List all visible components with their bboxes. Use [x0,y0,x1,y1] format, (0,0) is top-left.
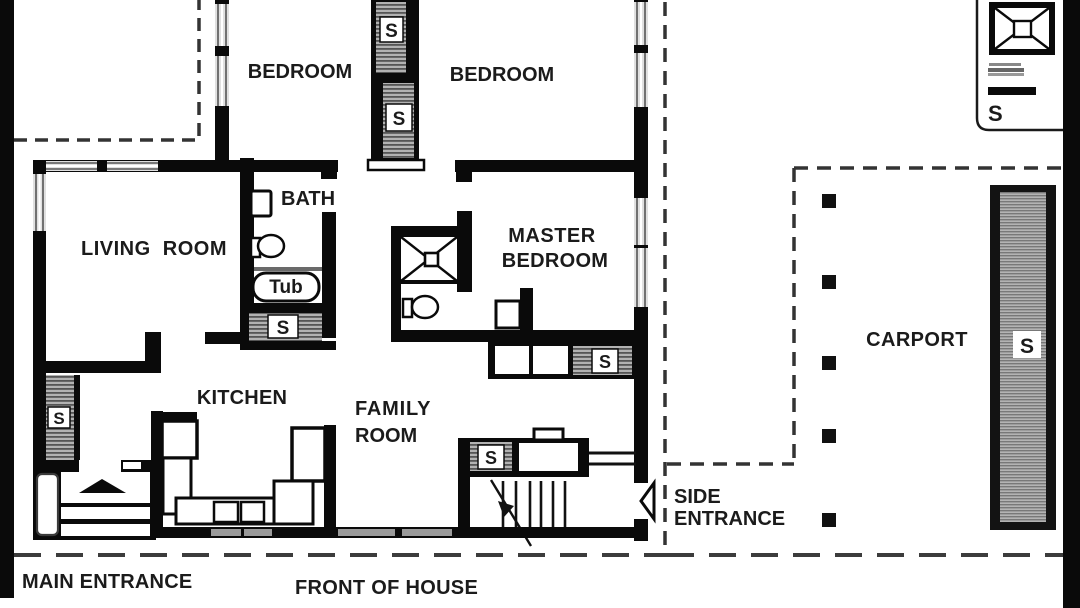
svg-text:S: S [393,109,406,130]
svg-text:S: S [599,352,611,372]
svg-text:S: S [277,318,290,339]
svg-text:BEDROOM: BEDROOM [450,64,554,86]
svg-text:S: S [485,448,497,468]
svg-text:FRONT OF HOUSE: FRONT OF HOUSE [295,577,478,599]
svg-text:KITCHEN: KITCHEN [197,387,287,409]
svg-text:BEDROOM: BEDROOM [502,250,609,272]
svg-text:BATH: BATH [281,188,335,210]
svg-text:LIVING ROOM: LIVING ROOM [81,238,227,260]
svg-text:S: S [1020,335,1034,358]
svg-text:FAMILY: FAMILY [355,398,431,420]
svg-text:S: S [385,21,398,42]
svg-text:SIDE: SIDE [674,486,721,508]
svg-text:Tub: Tub [269,277,302,298]
svg-text:S: S [53,409,64,428]
svg-text:MAIN ENTRANCE: MAIN ENTRANCE [22,571,192,593]
svg-text:S: S [988,101,1003,126]
svg-text:BEDROOM: BEDROOM [248,61,352,83]
svg-text:MASTER: MASTER [508,225,596,247]
svg-text:CARPORT: CARPORT [866,329,968,351]
svg-text:ROOM: ROOM [355,425,417,447]
svg-text:ENTRANCE: ENTRANCE [674,508,785,530]
